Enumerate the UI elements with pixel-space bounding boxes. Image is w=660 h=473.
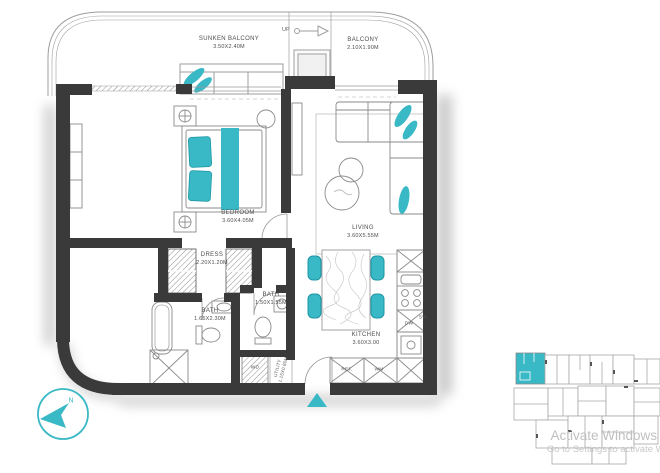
- coffee-table: [325, 176, 359, 210]
- floor-plan-drawing: [0, 0, 660, 473]
- wd-label: WD: [251, 366, 259, 371]
- shower-icon: [150, 350, 188, 386]
- room-label-dress: DRESS 2.20X1.20M: [196, 251, 228, 267]
- ottoman: [257, 110, 275, 128]
- room-label-living: LIVING 3.60X5.55M: [347, 224, 379, 240]
- nightstand: [174, 106, 196, 126]
- sw-label: SW: [419, 316, 427, 321]
- compass-icon: [38, 389, 88, 439]
- north-label: N: [68, 398, 73, 405]
- up-label: UP: [282, 27, 290, 33]
- room-label-bath-main: BATH 1.65X2.30M: [194, 307, 226, 323]
- room-label-kitchen: KITCHEN 3.60X3.00: [352, 331, 381, 347]
- bed: [182, 126, 266, 212]
- walls: [56, 76, 437, 395]
- nightstand: [174, 212, 196, 232]
- balcony-railing: [48, 12, 433, 96]
- dining-set: [308, 250, 384, 330]
- room-label-bedroom: BEDROOM 3.60X4.05M: [221, 209, 254, 225]
- floor-plan-page: SUNKEN BALCONY 3.50X2.40M BALCONY 2.10X1…: [0, 0, 660, 473]
- watermark-activate-windows: Activate Windows: [550, 428, 657, 443]
- watermark-settings-hint: Go to Settings to activate Win: [547, 444, 660, 455]
- sofa-leaf-cushions-icon: [391, 102, 420, 214]
- up-arrow-icon: [295, 26, 329, 36]
- room-label-balcony: BALCONY 2.10X1.90M: [347, 36, 379, 52]
- room-label-bath-guest: BATH 1.50X1.55M: [255, 291, 287, 307]
- toilet-icon: [255, 317, 271, 344]
- wm-label: WM: [375, 368, 384, 373]
- dw-label: DW: [405, 322, 413, 327]
- toilet-icon: [196, 326, 220, 344]
- ref-label: REF.: [341, 368, 352, 373]
- room-label-sunken-balcony: SUNKEN BALCONY 3.50X2.40M: [199, 35, 259, 51]
